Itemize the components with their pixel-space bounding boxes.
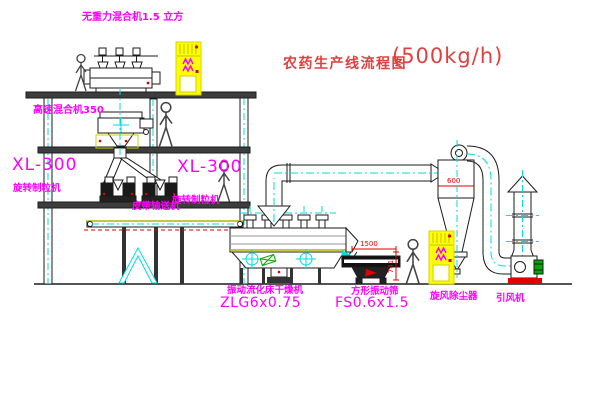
label-cyclone: 旋风除尘器 [430,292,478,302]
induced-draft-fan [508,256,543,284]
label-dryer-model: ZLG6x0.75 [220,296,301,310]
fan-base [508,278,542,284]
label-granulator-left-name: 旋转制粒机 [13,184,61,194]
process-flow-diagram: 无重力混合机1.5 立方 高速混合机350 XL-300 旋转制粒机 XL-30… [0,0,600,403]
label-granulator-left-model: XL-300 [12,157,77,174]
rotary-granulator [100,177,136,202]
label-high-speed-mixer: 高速混合机350 [33,106,104,116]
person-figure [159,103,172,147]
label-fan: 引风机 [496,294,525,304]
control-cabinet [176,42,201,95]
label-zero-gravity-mixer: 无重力混合机1.5 立方 [82,13,183,23]
dim-sieve-length: 1500 [360,241,378,248]
fan-motor [534,260,543,274]
diagram-capacity: (500kg/h) [392,44,503,68]
label-granulator-right-model: XL-300 [177,159,242,176]
diagram-title: 农药生产线流程图 [283,53,407,73]
high-speed-mixer [96,112,153,148]
dim-sieve-height: 741 [388,260,395,273]
fluid-bed-dryer [230,206,358,284]
label-belt-conveyor: 皮带输送机 [132,202,180,212]
zero-gravity-mixer [84,48,160,92]
control-cabinet [429,231,454,284]
label-sieve-model: FS0.6x1.5 [335,296,409,310]
dim-cyclone-diameter: 600 [447,178,460,185]
belt-conveyor [84,221,243,284]
person-figure [406,240,419,284]
